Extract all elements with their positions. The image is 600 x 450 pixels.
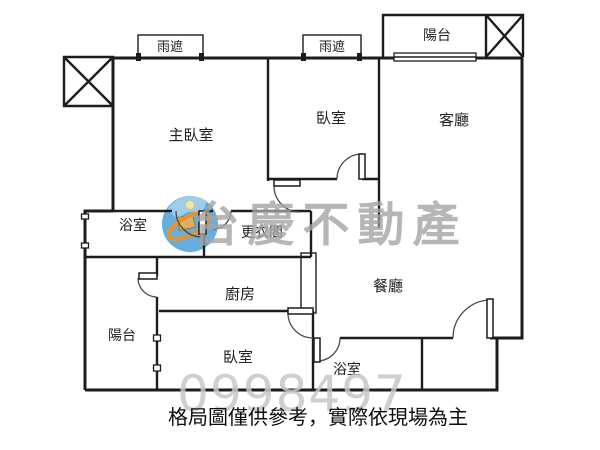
living-room-label: 客廳 xyxy=(439,111,469,129)
rain-shade-right-label: 雨遮 xyxy=(319,39,345,55)
bedroom-bottom-label: 臥室 xyxy=(223,348,253,366)
dining-room-label: 餐廳 xyxy=(373,277,403,295)
door-arc xyxy=(453,300,490,338)
balcony-left-label: 陽台 xyxy=(108,328,136,344)
door-leaf xyxy=(359,154,365,179)
bathroom-upper-label: 浴室 xyxy=(119,217,147,234)
door-arc xyxy=(138,278,157,297)
floor-plan: 雨遮 雨遮 陽台 主臥室 臥室 客廳 浴室 更衣間 廚房 餐廳 陽台 臥室 浴室… xyxy=(0,0,600,450)
disclaimer-text: 格局圖僅供參考，實際依現場為主 xyxy=(168,405,468,429)
balcony-top-outline xyxy=(383,15,523,61)
door-arc xyxy=(288,313,313,338)
door-leaf xyxy=(139,273,157,279)
master-bedroom-label: 主臥室 xyxy=(168,126,213,144)
door-leaf xyxy=(274,180,300,186)
watermark-brand-text: 台慶不動產 xyxy=(193,198,468,253)
bedroom-top-label: 臥室 xyxy=(316,109,346,127)
shaft-x-icon xyxy=(64,57,113,106)
kitchen-label: 廚房 xyxy=(225,285,255,303)
door-leaf xyxy=(288,308,313,314)
balcony-top-label: 陽台 xyxy=(423,28,451,44)
door-leaf xyxy=(487,299,493,338)
door-leaf xyxy=(314,338,320,362)
rain-shade-left-label: 雨遮 xyxy=(157,39,183,55)
wall-ticks xyxy=(82,214,161,371)
floor-plan-page: 雨遮 雨遮 陽台 主臥室 臥室 客廳 浴室 更衣間 廚房 餐廳 陽台 臥室 浴室… xyxy=(0,0,600,450)
